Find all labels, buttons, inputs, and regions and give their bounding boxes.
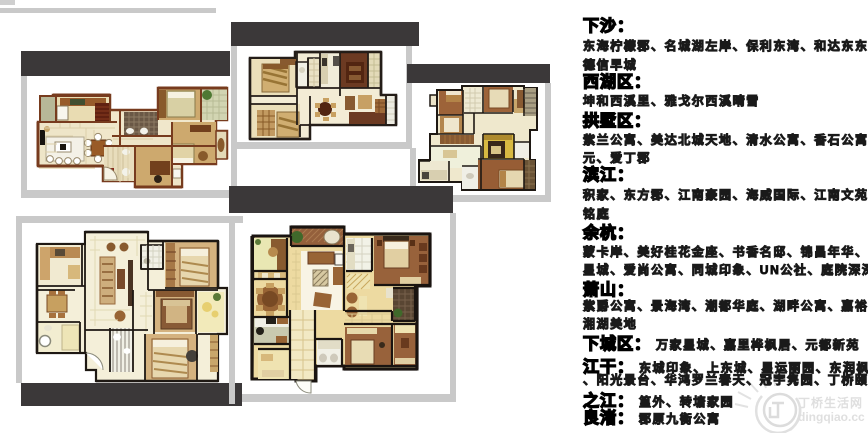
svg-text:dingqiao.cc: dingqiao.cc xyxy=(798,410,865,424)
svg-text:丁桥生活网: 丁桥生活网 xyxy=(798,395,863,410)
